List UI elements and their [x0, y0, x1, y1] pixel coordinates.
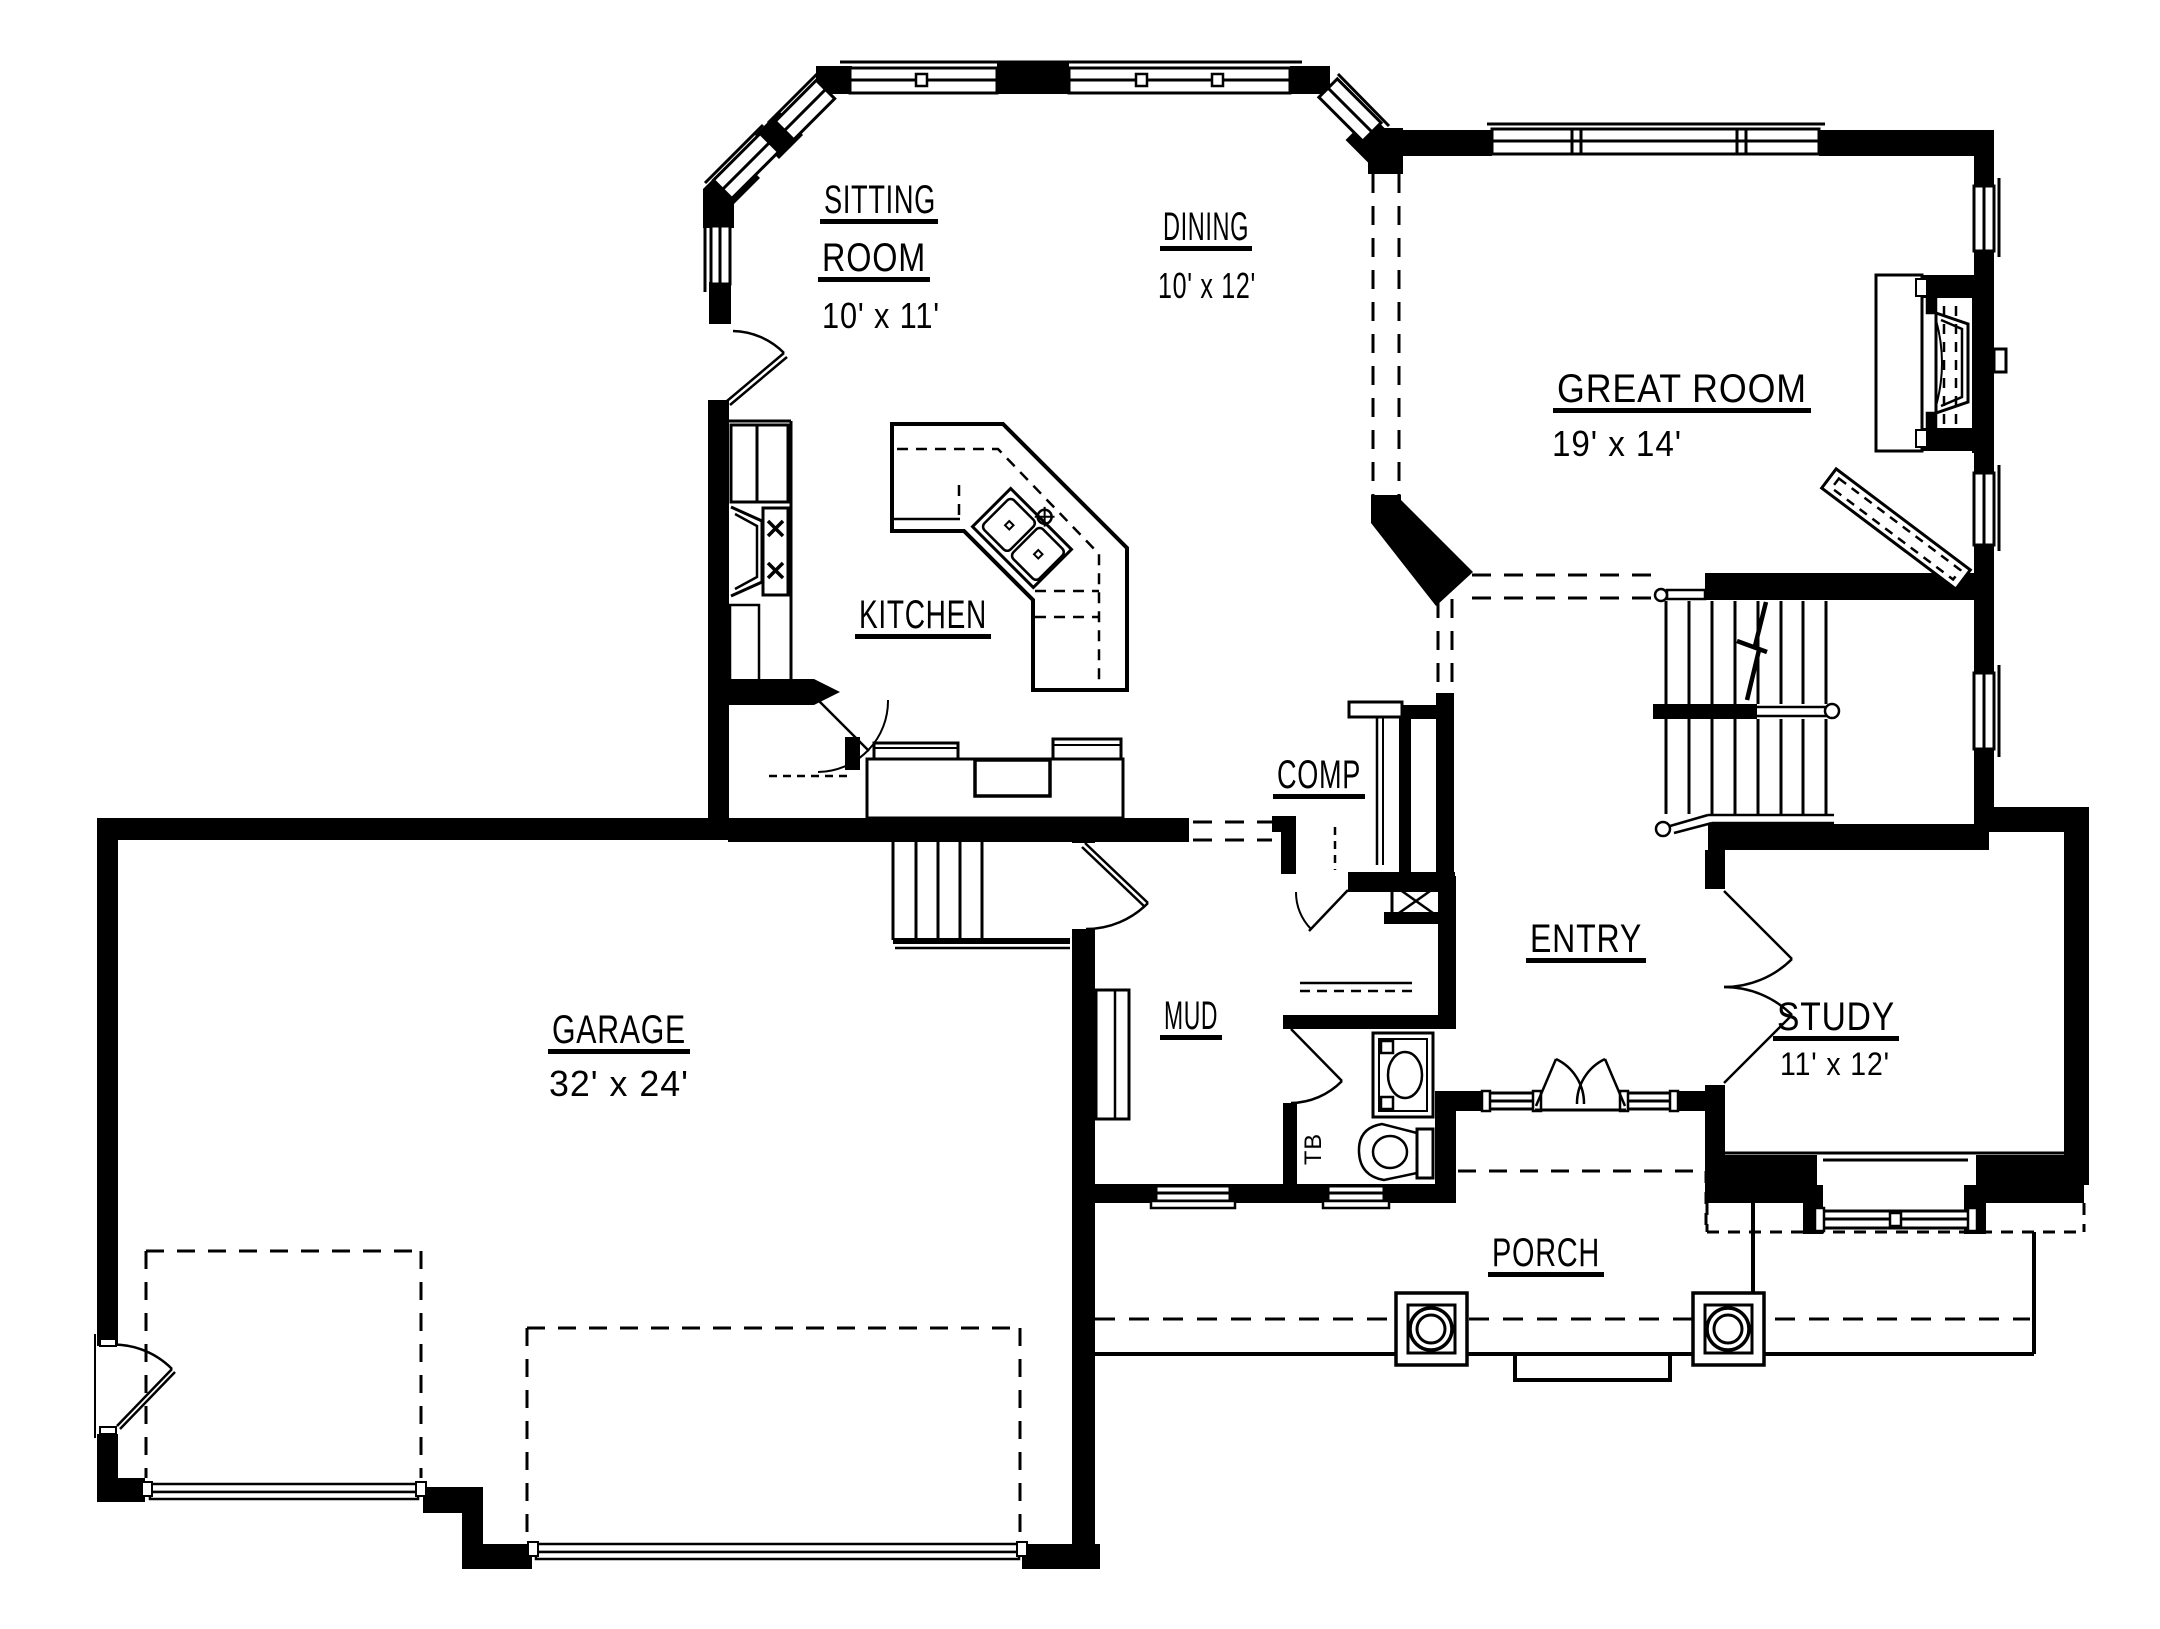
svg-text:KITCHEN: KITCHEN	[859, 593, 987, 637]
svg-text:32' x 24': 32' x 24'	[549, 1063, 689, 1104]
svg-text:ENTRY: ENTRY	[1530, 917, 1642, 961]
svg-text:TB: TB	[1300, 1133, 1327, 1165]
svg-text:STUDY: STUDY	[1777, 995, 1895, 1039]
svg-text:19' x 14': 19' x 14'	[1552, 423, 1682, 464]
svg-text:GARAGE: GARAGE	[552, 1008, 686, 1052]
svg-text:PORCH: PORCH	[1492, 1231, 1600, 1275]
svg-text:GREAT ROOM: GREAT ROOM	[1557, 367, 1807, 411]
svg-text:10' x 11': 10' x 11'	[822, 295, 940, 336]
svg-text:COMP: COMP	[1277, 753, 1361, 797]
svg-text:DINING: DINING	[1163, 205, 1249, 249]
svg-text:SITTING: SITTING	[824, 178, 936, 222]
svg-text:10' x 12': 10' x 12'	[1158, 265, 1256, 306]
svg-text:11' x 12': 11' x 12'	[1780, 1046, 1890, 1082]
svg-text:MUD: MUD	[1164, 994, 1218, 1038]
svg-text:ROOM: ROOM	[822, 236, 926, 280]
